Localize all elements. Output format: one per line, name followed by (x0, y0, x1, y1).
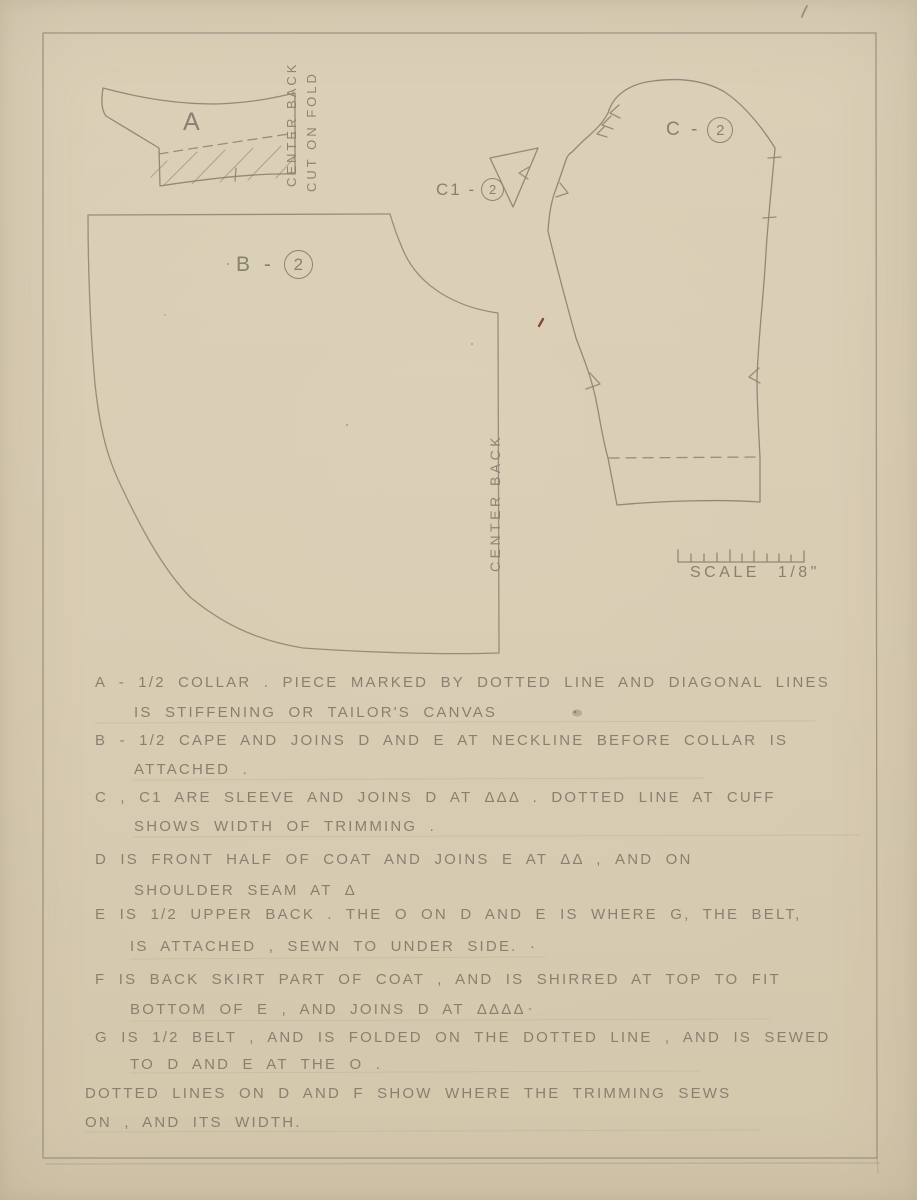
red-fleck (539, 319, 543, 326)
note-line-b1: B - 1/2 CAPE AND JOINS D AND E AT NECKLI… (95, 732, 788, 749)
piece-a-dotted-line (159, 133, 295, 154)
note-line-e1: E IS 1/2 UPPER BACK . THE O ON D AND E I… (95, 906, 801, 923)
note-line-d2: SHOULDER SEAM AT Δ (134, 882, 357, 899)
note-line-f1: F IS BACK SKIRT PART OF COAT , AND IS SH… (95, 971, 781, 988)
note-line-dotted2: ON , AND ITS WIDTH. (85, 1114, 302, 1131)
note-line-dotted1: DOTTED LINES ON D AND F SHOW WHERE THE T… (85, 1085, 731, 1102)
pattern-sheet: A B - 2 C1 - 2 C - 2 CENTER BACK CUT ON … (0, 0, 917, 1200)
sleeve-notches (556, 105, 781, 389)
piece-a-collar (102, 88, 295, 186)
sleeve-cuff-dotted-line (609, 457, 760, 458)
piece-a-hatching (151, 146, 295, 185)
piece-c1-circled-number: 2 (481, 178, 504, 201)
apostrophe-mark (802, 6, 807, 17)
note-line-g2: TO D AND E AT THE O . (130, 1056, 382, 1073)
smudge (572, 709, 582, 716)
note-line-a2: IS STIFFENING OR TAILOR'S CANVAS (134, 704, 497, 721)
piece-b-circled-number: 2 (284, 250, 313, 279)
piece-c1-letter: C1 - (436, 180, 476, 200)
piece-b-cape (88, 214, 499, 654)
piece-a-notch-mark (235, 168, 236, 181)
note-line-b2: ATTACHED . (134, 761, 249, 778)
note-line-g1: G IS 1/2 BELT , AND IS FOLDED ON THE DOT… (95, 1029, 830, 1046)
center-back-annotation-cape: CENTER BACK (487, 434, 503, 572)
piece-c1-label: C1 - 2 (436, 178, 504, 201)
piece-c-label: C - 2 (666, 117, 733, 143)
scale-ruler (678, 550, 804, 562)
note-line-e2: IS ATTACHED , SEWN TO UNDER SIDE. · (130, 938, 537, 955)
piece-b-label: B - 2 (236, 250, 313, 279)
note-line-d1: D IS FRONT HALF OF COAT AND JOINS E AT Δ… (95, 851, 693, 868)
piece-b-letter: B - (236, 253, 275, 277)
center-back-annotation-collar: CENTER BACK (284, 62, 299, 187)
piece-c-letter: C - (666, 119, 700, 141)
piece-c-circled-number: 2 (707, 117, 733, 143)
piece-a-label: A (183, 108, 201, 137)
piece-a-letter: A (183, 108, 201, 137)
piece-c-sleeve (548, 80, 781, 505)
cut-on-fold-annotation: CUT ON FOLD (304, 71, 319, 192)
note-line-a1: A - 1/2 COLLAR . PIECE MARKED BY DOTTED … (95, 674, 830, 691)
note-line-c1: C , C1 ARE SLEEVE AND JOINS D AT ΔΔΔ . D… (95, 789, 776, 806)
note-line-f2: BOTTOM OF E , AND JOINS D AT ΔΔΔΔ (130, 1001, 526, 1018)
note-line-c2: SHOWS WIDTH OF TRIMMING . (134, 818, 436, 835)
scale-caption: SCALE 1/8" (690, 564, 820, 582)
